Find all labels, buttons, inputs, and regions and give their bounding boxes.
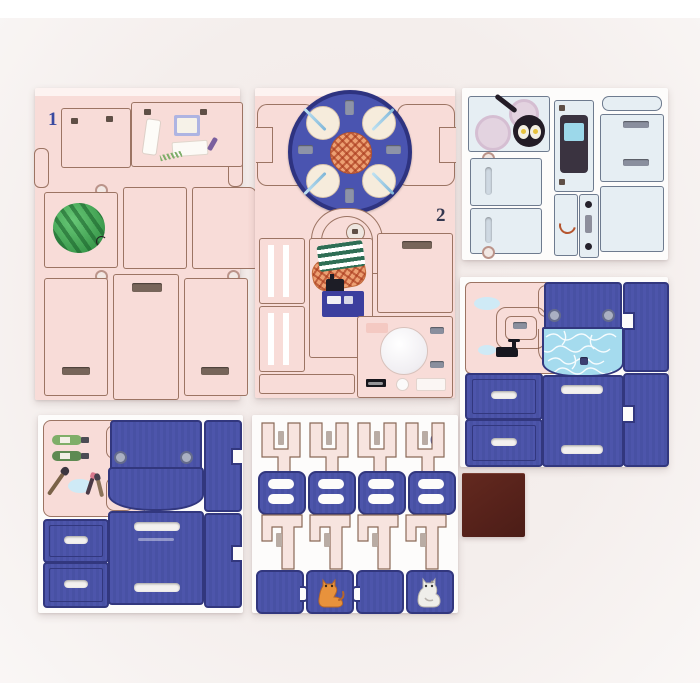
frying-pan-icon [513,115,545,147]
chair-seat-piece [308,471,356,515]
cabinet-piece [600,186,664,252]
top-white-bar [0,0,700,18]
wall-piece [259,374,355,394]
vanity-front-piece [108,511,204,605]
bathtub-front-piece [542,375,624,467]
chair-seat-piece [358,471,406,515]
curtain-piece [259,238,305,304]
side-panel-piece [204,513,242,608]
screw-hole [180,451,193,464]
trim-piece [554,194,578,256]
sheet-3: 3 [462,88,668,260]
bathtub-water-texture [542,327,624,377]
stool-piece [256,570,304,614]
chair-seat-piece [408,471,456,515]
herb-sprig-icon [160,151,183,161]
washer-label [366,379,386,387]
plate-icon [306,106,340,140]
picture-frame-icon [174,115,200,136]
side-panel-piece [623,282,669,372]
vanity-apron-piece [108,467,204,511]
side-panel-piece [623,373,669,467]
chair-seat-piece [258,471,306,515]
wall-piece [192,187,257,269]
counter-piece [131,102,243,167]
drawer-piece [465,373,543,420]
stovetop-piece [468,96,550,152]
control-strip-piece [579,194,599,258]
drawer-piece [43,562,109,608]
watermelon-icon [53,203,105,253]
water-blob-icon [474,297,500,310]
side-panel-piece [204,420,242,512]
brush2-icon [96,479,104,497]
sheet-2: 7 2 [255,88,455,398]
bottom-white-bar [0,683,700,700]
table-slot [298,145,313,154]
faucet-icon [488,341,518,359]
microwave-piece [554,100,594,192]
washer-button-icon [396,378,409,391]
sausage-icon [556,214,579,237]
product-photo: 1 [0,0,700,700]
washing-machine-piece [357,316,453,398]
utensil-icon [207,137,218,152]
stool-piece-cat [306,570,354,614]
washer-door-icon [380,327,428,375]
sandpaper-square [462,473,525,537]
stool-piece-cat [406,570,454,614]
cat-white-icon [416,576,444,608]
cabinet-piece [600,114,664,182]
plate-icon [306,164,340,198]
plate-icon [475,115,511,151]
wall-piece [61,108,131,168]
watermelon-piece [44,192,118,268]
table-slot [345,188,354,203]
drawer-piece [465,419,543,467]
screw-hole [114,451,127,464]
sheet-5: 5 [38,415,243,613]
table-slot [345,100,354,115]
bottle-icon [52,451,82,461]
sheet-6: 6 [252,415,458,613]
microwave-icon [560,115,588,173]
curtain-piece [259,306,305,372]
sheet-1-number: 1 [48,110,58,129]
dining-table-top-piece [288,90,412,214]
drawer-piece [43,519,109,563]
center-dish-icon [330,132,372,174]
wall-piece [44,278,108,396]
wall-piece [113,274,179,400]
screw-hole [602,309,615,322]
cabinet-piece [470,158,542,206]
edge-tab [34,148,49,188]
bottle-icon [52,435,82,445]
cabinet-piece [470,208,542,254]
handle-piece [602,96,662,111]
screw-hole [548,309,561,322]
drill-hole [482,246,495,259]
sheet-2-number: 2 [436,206,446,225]
table-slot [386,145,401,154]
vanity-back-piece [110,420,202,474]
cutting-board-icon [142,118,162,156]
sheet-4: 4 [460,277,668,467]
wall-piece [377,233,453,313]
cat-orange-icon [315,576,345,608]
wall-piece [184,278,248,396]
stool-piece [356,570,404,614]
sink-cabinet-icon [322,291,364,317]
sheet-1: 1 [35,88,240,400]
chair-leg-pieces-row [256,513,452,571]
makeup-brush-icon [47,472,65,496]
wall-piece [123,187,187,269]
